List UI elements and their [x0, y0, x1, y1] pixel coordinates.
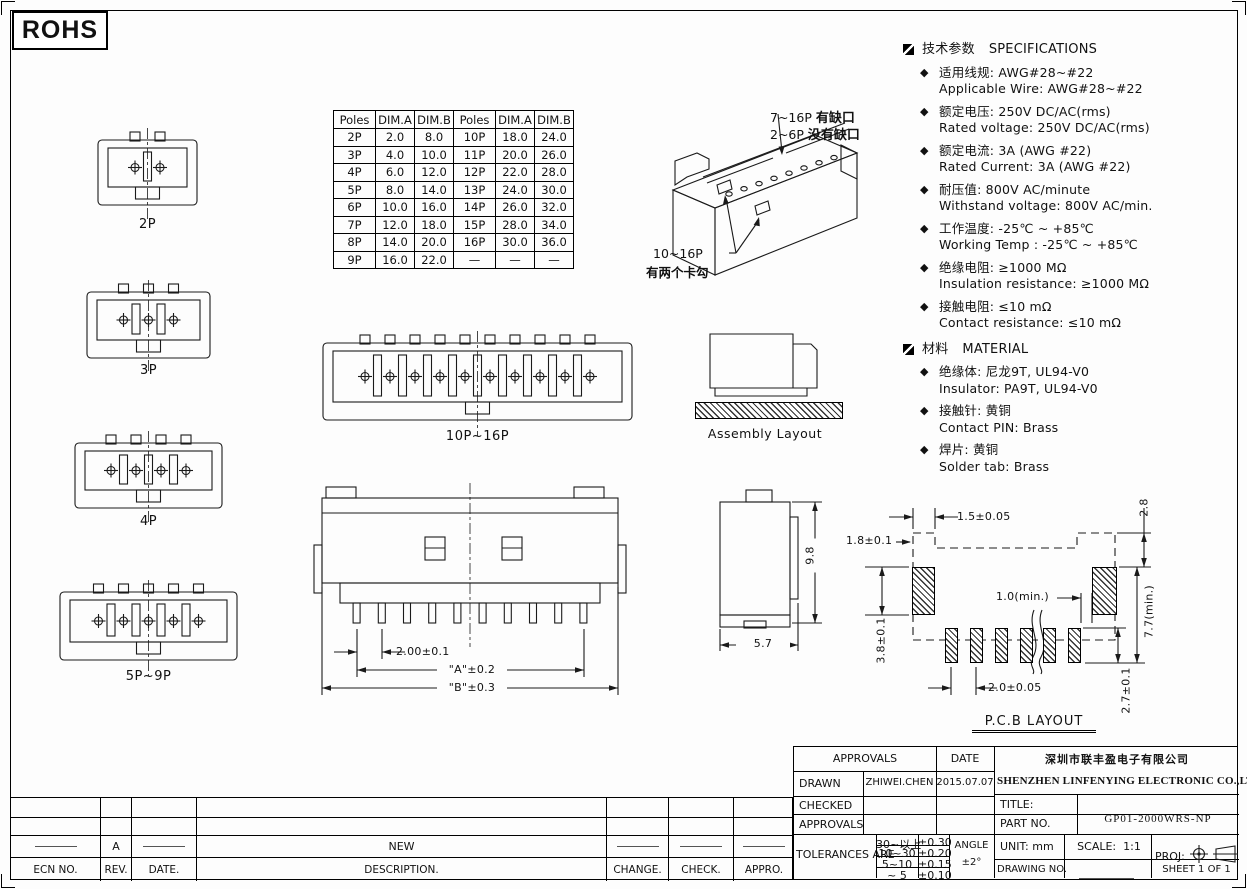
poles-table-cell: 15P — [454, 216, 496, 234]
poles-table-cell: 16P — [454, 234, 496, 252]
drawn-label: DRAWN — [799, 777, 841, 790]
diamond-bullet-icon: ◆ — [920, 442, 929, 458]
spec-section-header: 技术参数SPECIFICATIONS — [903, 42, 1240, 58]
poles-table-cell: 20.0 — [415, 234, 454, 252]
drawing-sheet: ROHS PolesDIM.ADIM.BPolesDIM.ADIM.B2P2.0… — [0, 0, 1247, 889]
poles-table-header: DIM.B — [415, 111, 454, 129]
spec-item: ◆绝缘电阻: ≥1000 MΩInsulation resistance: ≥1… — [903, 260, 1240, 292]
callout-hook-line1: 10~16P — [653, 246, 703, 261]
part-no-value: GP01-2000WRS-NP — [1077, 813, 1239, 825]
dim-pcb-min-gap: 1.0(min.) — [996, 590, 1049, 603]
assembly-layout-label: Assembly Layout — [705, 426, 825, 441]
spec-item: ◆耐压值: 800V AC/minuteWithstand voltage: 8… — [903, 182, 1240, 214]
revision-cell — [606, 798, 668, 817]
revision-cell — [606, 835, 668, 857]
revision-cell — [196, 817, 606, 835]
dim-pin-pitch: 2.00±0.1 — [396, 645, 450, 658]
tol-value-4: ±0.10 — [918, 869, 949, 882]
front-view-4p-drawing — [69, 431, 228, 526]
side-view-drawing — [700, 483, 840, 661]
pcb-pad-large-left — [912, 567, 935, 615]
poles-table-cell: 28.0 — [535, 164, 574, 182]
revision-header-cell: DATE. — [131, 857, 196, 881]
dim-b: "B"±0.3 — [437, 681, 507, 694]
dim-a: "A"±0.2 — [437, 663, 507, 676]
sheet-label: SHEET 1 OF 1 — [1154, 864, 1239, 875]
pcb-pad-small — [970, 628, 983, 663]
spec-item: ◆工作温度: -25℃ ~ +85℃Working Temp : -25℃ ~ … — [903, 221, 1240, 253]
part-no-label: PART NO. — [1000, 817, 1050, 830]
poles-table-header: Poles — [334, 111, 376, 129]
poles-table-cell: 24.0 — [535, 129, 574, 147]
rohs-badge: ROHS — [12, 11, 108, 50]
revision-header-cell: REV. — [100, 857, 131, 881]
proj-label: PROJ: — [1155, 850, 1185, 863]
poles-table-cell: 7P — [334, 216, 376, 234]
poles-table-header: DIM.B — [535, 111, 574, 129]
spec-item: ◆适用线规: AWG#28~#22Applicable Wire: AWG#28… — [903, 65, 1240, 97]
company-name-cn: 深圳市联丰盈电子有限公司 — [997, 751, 1237, 767]
revision-cell: NEW — [196, 835, 606, 857]
spec-item: ◆绝缘体: 尼龙9T, UL94-V0Insulator: PA9T, UL94… — [903, 364, 1240, 396]
revision-cell — [733, 817, 794, 835]
diamond-bullet-icon: ◆ — [920, 221, 929, 237]
hatched-square-icon — [903, 44, 914, 55]
poles-table-cell: 36.0 — [535, 234, 574, 252]
dim-pcb-span-min: 7.7(min.) — [1143, 580, 1156, 644]
diamond-bullet-icon: ◆ — [920, 260, 929, 276]
poles-table-cell: 16.0 — [376, 251, 415, 269]
poles-table-header: DIM.A — [496, 111, 535, 129]
poles-table-cell: 8P — [334, 234, 376, 252]
dim-pcb-pad-height: 3.8±0.1 — [875, 611, 888, 671]
revision-cell — [11, 817, 100, 835]
dim-pcb-small-pad-height: 2.7±0.1 — [1120, 661, 1133, 721]
poles-table-cell: 14.0 — [376, 234, 415, 252]
spec-item: ◆额定电流: 3A (AWG #22)Rated Current: 3A (AW… — [903, 143, 1240, 175]
poles-table-cell: 14.0 — [415, 181, 454, 199]
specifications-panel: 技术参数SPECIFICATIONS◆适用线规: AWG#28~#22Appli… — [903, 42, 1240, 481]
poles-table-cell: 10.0 — [376, 199, 415, 217]
poles-table-cell: 22.0 — [496, 164, 535, 182]
assembly-layout-drawing — [685, 326, 855, 402]
unit-label: UNIT: — [1000, 840, 1029, 853]
diamond-bullet-icon: ◆ — [920, 182, 929, 198]
proj-cell: PROJ: — [1155, 840, 1236, 863]
poles-table-cell: 16.0 — [415, 199, 454, 217]
callout-hook-line2: 有两个卡勾 — [646, 262, 709, 281]
pcb-pad-small — [1020, 628, 1033, 663]
poles-table-cell: 3P — [334, 146, 376, 164]
revision-cell — [606, 817, 668, 835]
revision-cell — [668, 817, 733, 835]
poles-table-cell: 4.0 — [376, 146, 415, 164]
hatched-square-icon — [903, 344, 914, 355]
drawn-name: ZHIWEI.CHEN — [863, 777, 936, 788]
revision-header-cell: DESCRIPTION. — [196, 857, 606, 881]
poles-table-cell: 26.0 — [535, 146, 574, 164]
poles-dimension-table: PolesDIM.ADIM.BPolesDIM.ADIM.B2P2.08.010… — [333, 110, 574, 269]
poles-table-cell: 12P — [454, 164, 496, 182]
poles-table-cell: 10.0 — [415, 146, 454, 164]
revision-header-cell: CHANGE. — [606, 857, 668, 881]
view-label-3p: 3P — [81, 363, 216, 378]
revision-cell: A — [100, 835, 131, 857]
view-label-10p16p: 10P~16P — [317, 429, 638, 444]
spec-item: ◆额定电压: 250V DC/AC(rms)Rated voltage: 250… — [903, 104, 1240, 136]
poles-table-cell: 28.0 — [496, 216, 535, 234]
dim-pcb-right-top: 2.8 — [1138, 488, 1151, 528]
pcb-pad-small — [1043, 628, 1056, 663]
poles-table-cell: 18.0 — [496, 129, 535, 147]
poles-table-cell: 5P — [334, 181, 376, 199]
spec-item: ◆焊片: 黄铜Solder tab: Brass — [903, 442, 1240, 474]
revision-cell — [100, 798, 131, 817]
dim-depth: 5.7 — [736, 637, 790, 650]
poles-table-cell: 20.0 — [496, 146, 535, 164]
diamond-bullet-icon: ◆ — [920, 65, 929, 81]
poles-table-cell: 12.0 — [376, 216, 415, 234]
revision-header-cell: APPRO. — [733, 857, 794, 881]
poles-table-cell: — — [535, 251, 574, 269]
title-block: APPROVALS DATE DRAWN ZHIWEI.CHEN 2015.07… — [793, 746, 1238, 880]
poles-table-cell: 13P — [454, 181, 496, 199]
diamond-bullet-icon: ◆ — [920, 104, 929, 120]
poles-table-cell: 2P — [334, 129, 376, 147]
revision-header-cell: CHECK. — [668, 857, 733, 881]
poles-table-cell: 9P — [334, 251, 376, 269]
revision-cell — [196, 798, 606, 817]
company-name-en: SHENZHEN LINFENYING ELECTRONIC CO.,LTD — [997, 775, 1237, 787]
poles-table-header: DIM.A — [376, 111, 415, 129]
revision-cell — [733, 798, 794, 817]
unit-value: mm — [1032, 840, 1053, 853]
revision-cell — [733, 835, 794, 857]
drawing-no-label: DRAWING NO. — [997, 864, 1067, 875]
poles-table-cell: 14P — [454, 199, 496, 217]
revision-cell — [131, 835, 196, 857]
poles-table-cell: 6P — [334, 199, 376, 217]
poles-table-cell: 34.0 — [535, 216, 574, 234]
drawing-no-value — [1079, 869, 1134, 882]
spec-item: ◆接触电阻: ≤10 mΩContact resistance: ≤10 mΩ — [903, 299, 1240, 331]
pcb-pad-small — [995, 628, 1008, 663]
scale-value: 1:1 — [1123, 840, 1141, 853]
view-label-4p: 4P — [69, 514, 228, 529]
revision-cell — [668, 798, 733, 817]
revision-header-cell: ECN NO. — [11, 857, 100, 881]
dim-pcb-top-offset: 1.5±0.05 — [957, 510, 1011, 523]
third-angle-projection-icon — [1190, 844, 1238, 864]
angle-label: ANGLE — [949, 840, 994, 851]
poles-table-cell: — — [496, 251, 535, 269]
poles-table-cell: 2.0 — [376, 129, 415, 147]
pcb-pad-small — [945, 628, 958, 663]
revision-table: ANEWECN NO.REV.DATE.DESCRIPTION.CHANGE.C… — [10, 797, 793, 880]
drawn-date: 2015.07.07 — [936, 777, 994, 788]
front-view-2p-drawing — [92, 128, 203, 223]
tol-range-4: ~ 5 — [876, 869, 918, 882]
front-view-5p9p-drawing — [54, 580, 243, 678]
revision-cell — [668, 835, 733, 857]
approvals-header: APPROVALS — [794, 752, 936, 765]
poles-table-cell: 30.0 — [496, 234, 535, 252]
diamond-bullet-icon: ◆ — [920, 143, 929, 159]
diamond-bullet-icon: ◆ — [920, 403, 929, 419]
approvals-label: APPROVALS — [799, 818, 863, 831]
spec-item: ◆接触针: 黄铜Contact PIN: Brass — [903, 403, 1240, 435]
pcb-layout-drawing — [845, 495, 1243, 743]
scale-cell: SCALE: 1:1 — [1070, 840, 1148, 853]
checked-label: CHECKED — [799, 799, 852, 812]
title-label: TITLE: — [1000, 798, 1033, 811]
date-header: DATE — [936, 752, 994, 765]
poles-table-cell: — — [454, 251, 496, 269]
unit-cell: UNIT: mm — [1000, 840, 1054, 853]
poles-table-cell: 26.0 — [496, 199, 535, 217]
poles-table-cell: 10P — [454, 129, 496, 147]
pcb-pad-large-right — [1092, 567, 1117, 615]
poles-table-cell: 6.0 — [376, 164, 415, 182]
poles-table-cell: 18.0 — [415, 216, 454, 234]
dim-height: 9.8 — [804, 539, 817, 573]
revision-cell — [100, 817, 131, 835]
poles-table-cell: 24.0 — [496, 181, 535, 199]
pcb-layout-label: P.C.B LAYOUT — [972, 714, 1096, 733]
poles-table-cell: 11P — [454, 146, 496, 164]
pcb-pad-small — [1068, 628, 1081, 663]
poles-table-cell: 30.0 — [535, 181, 574, 199]
poles-table-cell: 8.0 — [376, 181, 415, 199]
front-view-10p16p-drawing — [317, 331, 638, 438]
corner-mark-icon — [1232, 1, 1246, 15]
poles-table-cell: 12.0 — [415, 164, 454, 182]
poles-table-cell: 4P — [334, 164, 376, 182]
dim-pcb-pitch: 2.0±0.05 — [988, 681, 1042, 694]
revision-cell — [11, 798, 100, 817]
angle-value: ±2° — [949, 857, 994, 868]
pcb-board-hatch — [695, 402, 843, 419]
callout-notch-line2: 2~6P 没有缺口 — [770, 124, 860, 143]
revision-cell — [11, 835, 100, 857]
poles-table-cell: 32.0 — [535, 199, 574, 217]
spec-section-header: 材料MATERIAL — [903, 342, 1240, 358]
front-view-3p-drawing — [81, 280, 216, 376]
tolerances-label: TOLERANCES ARE — [796, 848, 876, 861]
poles-table-cell: 8.0 — [415, 129, 454, 147]
view-label-2p: 2P — [92, 217, 203, 232]
poles-table-cell: 22.0 — [415, 251, 454, 269]
dim-pcb-left-offset: 1.8±0.1 — [846, 534, 892, 547]
diamond-bullet-icon: ◆ — [920, 299, 929, 315]
view-label-5p9p: 5P~9P — [54, 669, 243, 684]
diamond-bullet-icon: ◆ — [920, 364, 929, 380]
revision-cell — [131, 798, 196, 817]
poles-table-header: Poles — [454, 111, 496, 129]
scale-label: SCALE: — [1077, 840, 1116, 853]
revision-cell — [131, 817, 196, 835]
